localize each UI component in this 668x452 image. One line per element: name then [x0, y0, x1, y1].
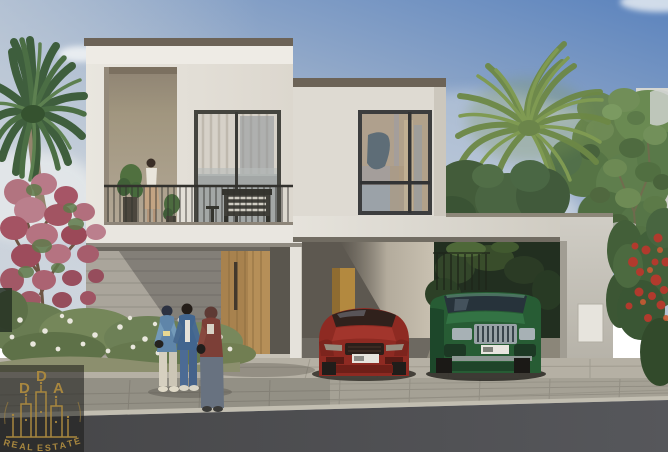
svg-text:S: S — [45, 443, 52, 452]
svg-text:A: A — [53, 380, 64, 397]
svg-text:D: D — [19, 380, 30, 397]
svg-text:E: E — [37, 443, 43, 452]
